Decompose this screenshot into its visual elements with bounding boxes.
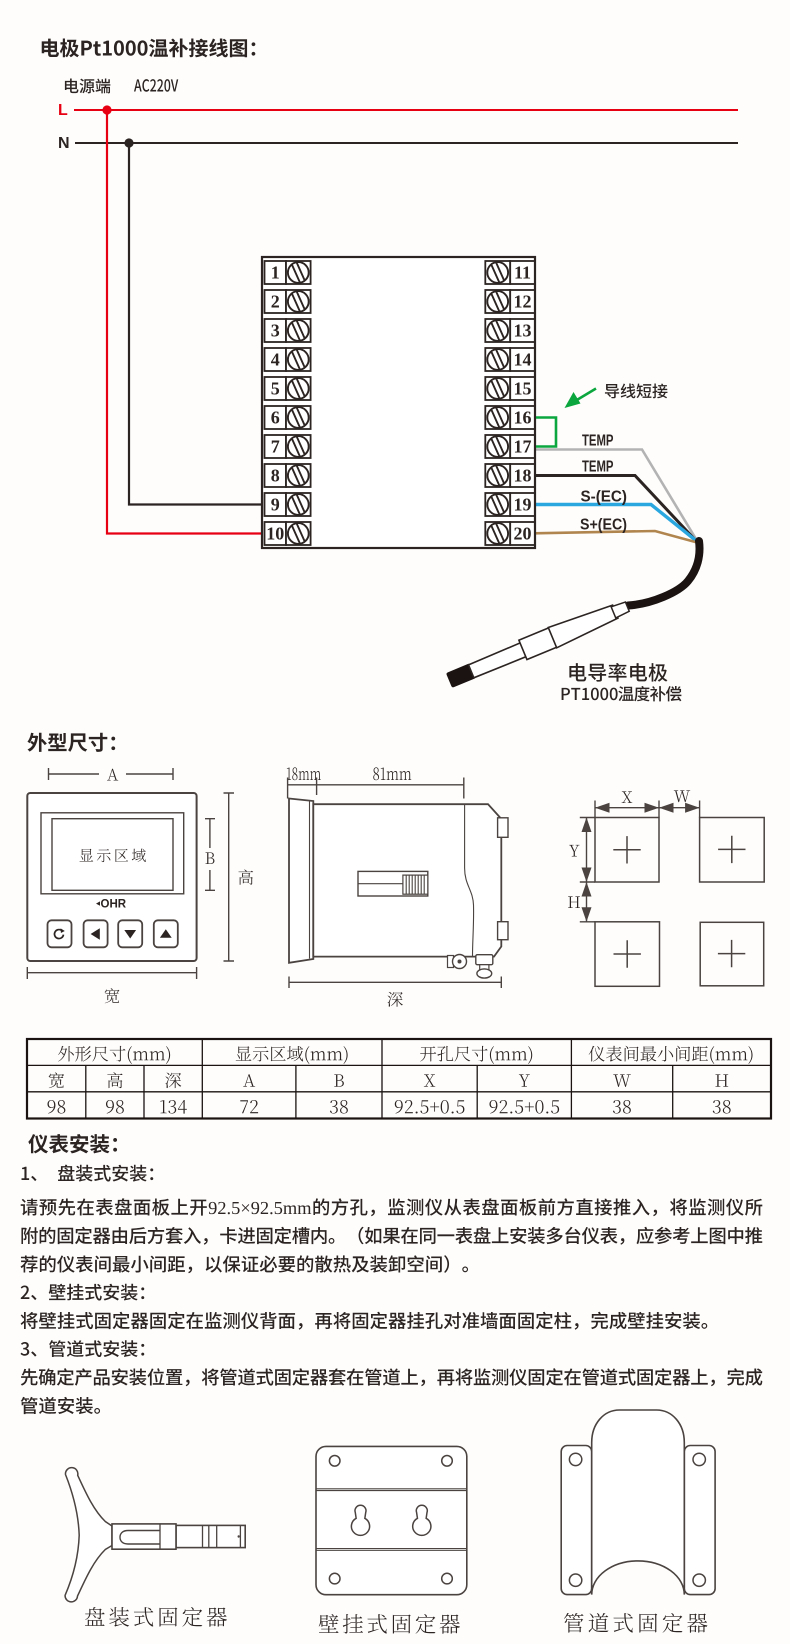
svg-text:2: 2 xyxy=(271,292,280,312)
svg-text:4: 4 xyxy=(271,350,280,370)
svg-text:10: 10 xyxy=(266,524,284,544)
svg-text:11: 11 xyxy=(514,263,531,283)
svg-text:12: 12 xyxy=(514,292,532,312)
svg-text:20: 20 xyxy=(514,524,532,544)
svg-text:TEMP: TEMP xyxy=(582,433,614,450)
svg-text:8: 8 xyxy=(271,466,280,486)
svg-text:14: 14 xyxy=(514,350,532,370)
svg-text:L: L xyxy=(58,102,68,119)
svg-text:S-(EC): S-(EC) xyxy=(581,489,628,506)
svg-text:6: 6 xyxy=(271,408,280,428)
svg-text:9: 9 xyxy=(271,495,280,515)
svg-text:1: 1 xyxy=(271,263,280,283)
svg-text:13: 13 xyxy=(514,321,532,341)
svg-text:3: 3 xyxy=(271,321,280,341)
svg-text:N: N xyxy=(58,135,70,152)
svg-text:19: 19 xyxy=(514,495,532,515)
svg-text:18: 18 xyxy=(514,466,532,486)
svg-text:TEMP: TEMP xyxy=(582,459,614,476)
svg-text:17: 17 xyxy=(514,437,532,457)
svg-text:15: 15 xyxy=(514,379,532,399)
svg-text:S+(EC): S+(EC) xyxy=(580,517,627,534)
svg-text:16: 16 xyxy=(514,408,532,428)
svg-text:7: 7 xyxy=(271,437,280,457)
svg-text:5: 5 xyxy=(271,379,280,399)
svg-text:OHR: OHR xyxy=(101,898,127,910)
